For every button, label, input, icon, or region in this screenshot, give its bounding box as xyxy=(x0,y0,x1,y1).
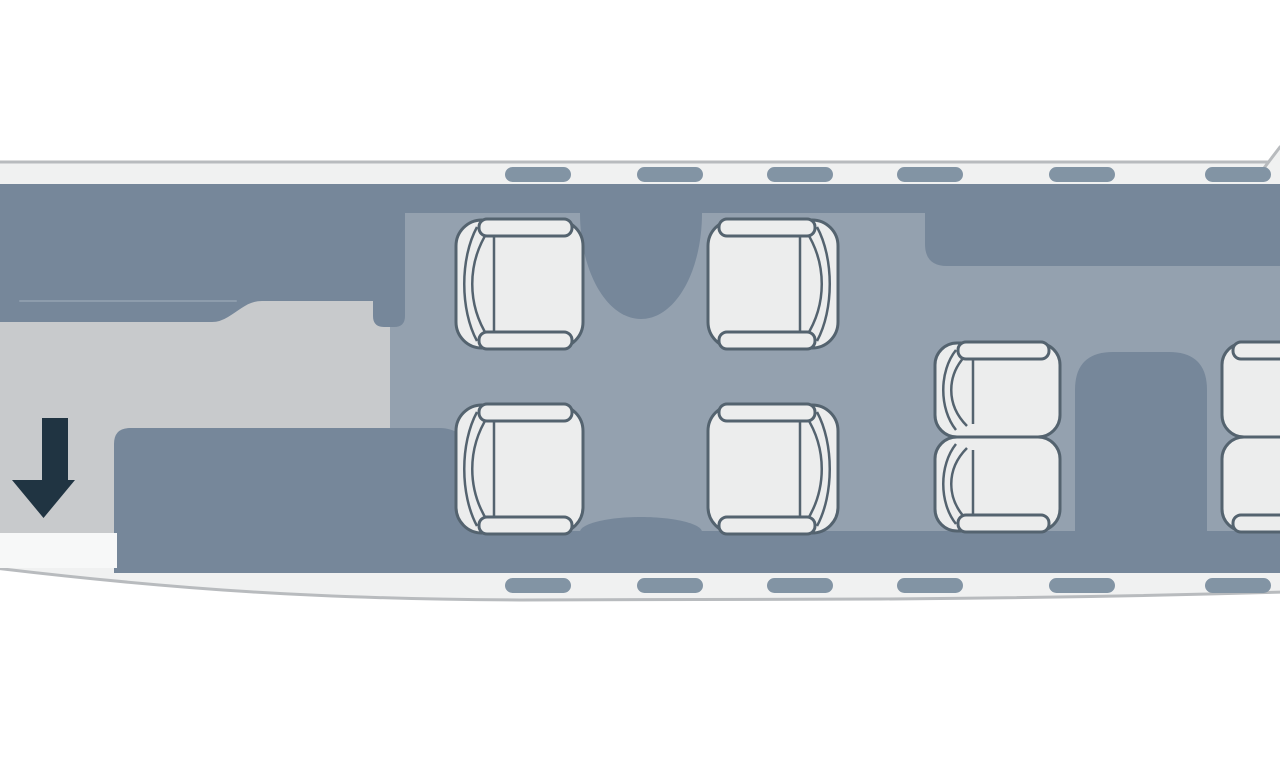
seat-armrest-bottom xyxy=(1233,515,1280,532)
aft-cabinet xyxy=(1075,352,1207,540)
seat-body xyxy=(708,220,838,348)
aircraft-cabin-floorplan xyxy=(0,0,1280,768)
cabin-window-bottom xyxy=(637,578,703,593)
seat-armrest-bottom xyxy=(958,515,1049,532)
seat-club-forward-left xyxy=(456,219,583,349)
seat-aft-pair-left-2 xyxy=(935,437,1060,532)
cabin-window-bottom xyxy=(897,578,963,593)
entry-door xyxy=(0,533,117,568)
seat-club-rear-left xyxy=(456,404,583,534)
cabin-window-top xyxy=(637,167,703,182)
seat-armrest-top xyxy=(958,342,1049,359)
seat-armrest-bottom xyxy=(719,517,815,534)
seat-armrest-top xyxy=(719,219,815,236)
seat-armrest-top xyxy=(479,404,572,421)
cabin-window-top xyxy=(1049,167,1115,182)
seat-armrest-top xyxy=(479,219,572,236)
seat-armrest-bottom xyxy=(719,332,815,349)
cabin-window-top xyxy=(897,167,963,182)
cabin-window-bottom xyxy=(767,578,833,593)
cabin-window-bottom xyxy=(1049,578,1115,593)
seat-armrest-bottom xyxy=(479,332,572,349)
cabin-window-bottom xyxy=(1205,578,1271,593)
seat-armrest-top xyxy=(1233,342,1280,359)
seat-aft-pair-left-1 xyxy=(935,342,1060,437)
cabin-window-top xyxy=(767,167,833,182)
seat-armrest-top xyxy=(719,404,815,421)
cabin-window-top xyxy=(1205,167,1271,182)
cabin-window-bottom xyxy=(505,578,571,593)
seat-armrest-bottom xyxy=(479,517,572,534)
seat-body xyxy=(456,405,583,533)
seat-body xyxy=(708,405,838,533)
cabin-floorplan-svg xyxy=(0,0,1280,768)
seat-club-rear-right xyxy=(708,404,838,534)
cabin-window-top xyxy=(505,167,571,182)
seat-body xyxy=(456,220,583,348)
aft-galley-top xyxy=(925,184,1280,266)
seat-aft-pair-right-2 xyxy=(1222,437,1280,532)
seat-club-forward-right xyxy=(708,219,838,349)
seat-aft-pair-right-1 xyxy=(1222,342,1280,437)
